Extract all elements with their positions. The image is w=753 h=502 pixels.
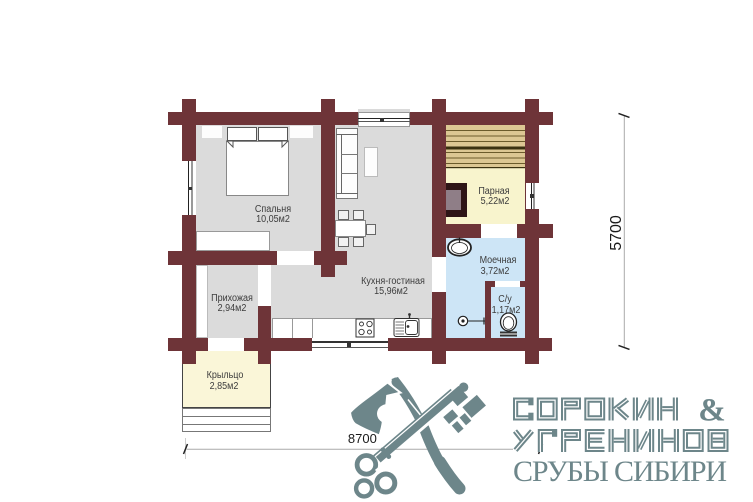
svg-text:5700: 5700	[608, 215, 625, 251]
svg-text:&: &	[698, 393, 726, 429]
svg-text:СРУБЫ СИБИРИ: СРУБЫ СИБИРИ	[513, 455, 727, 488]
